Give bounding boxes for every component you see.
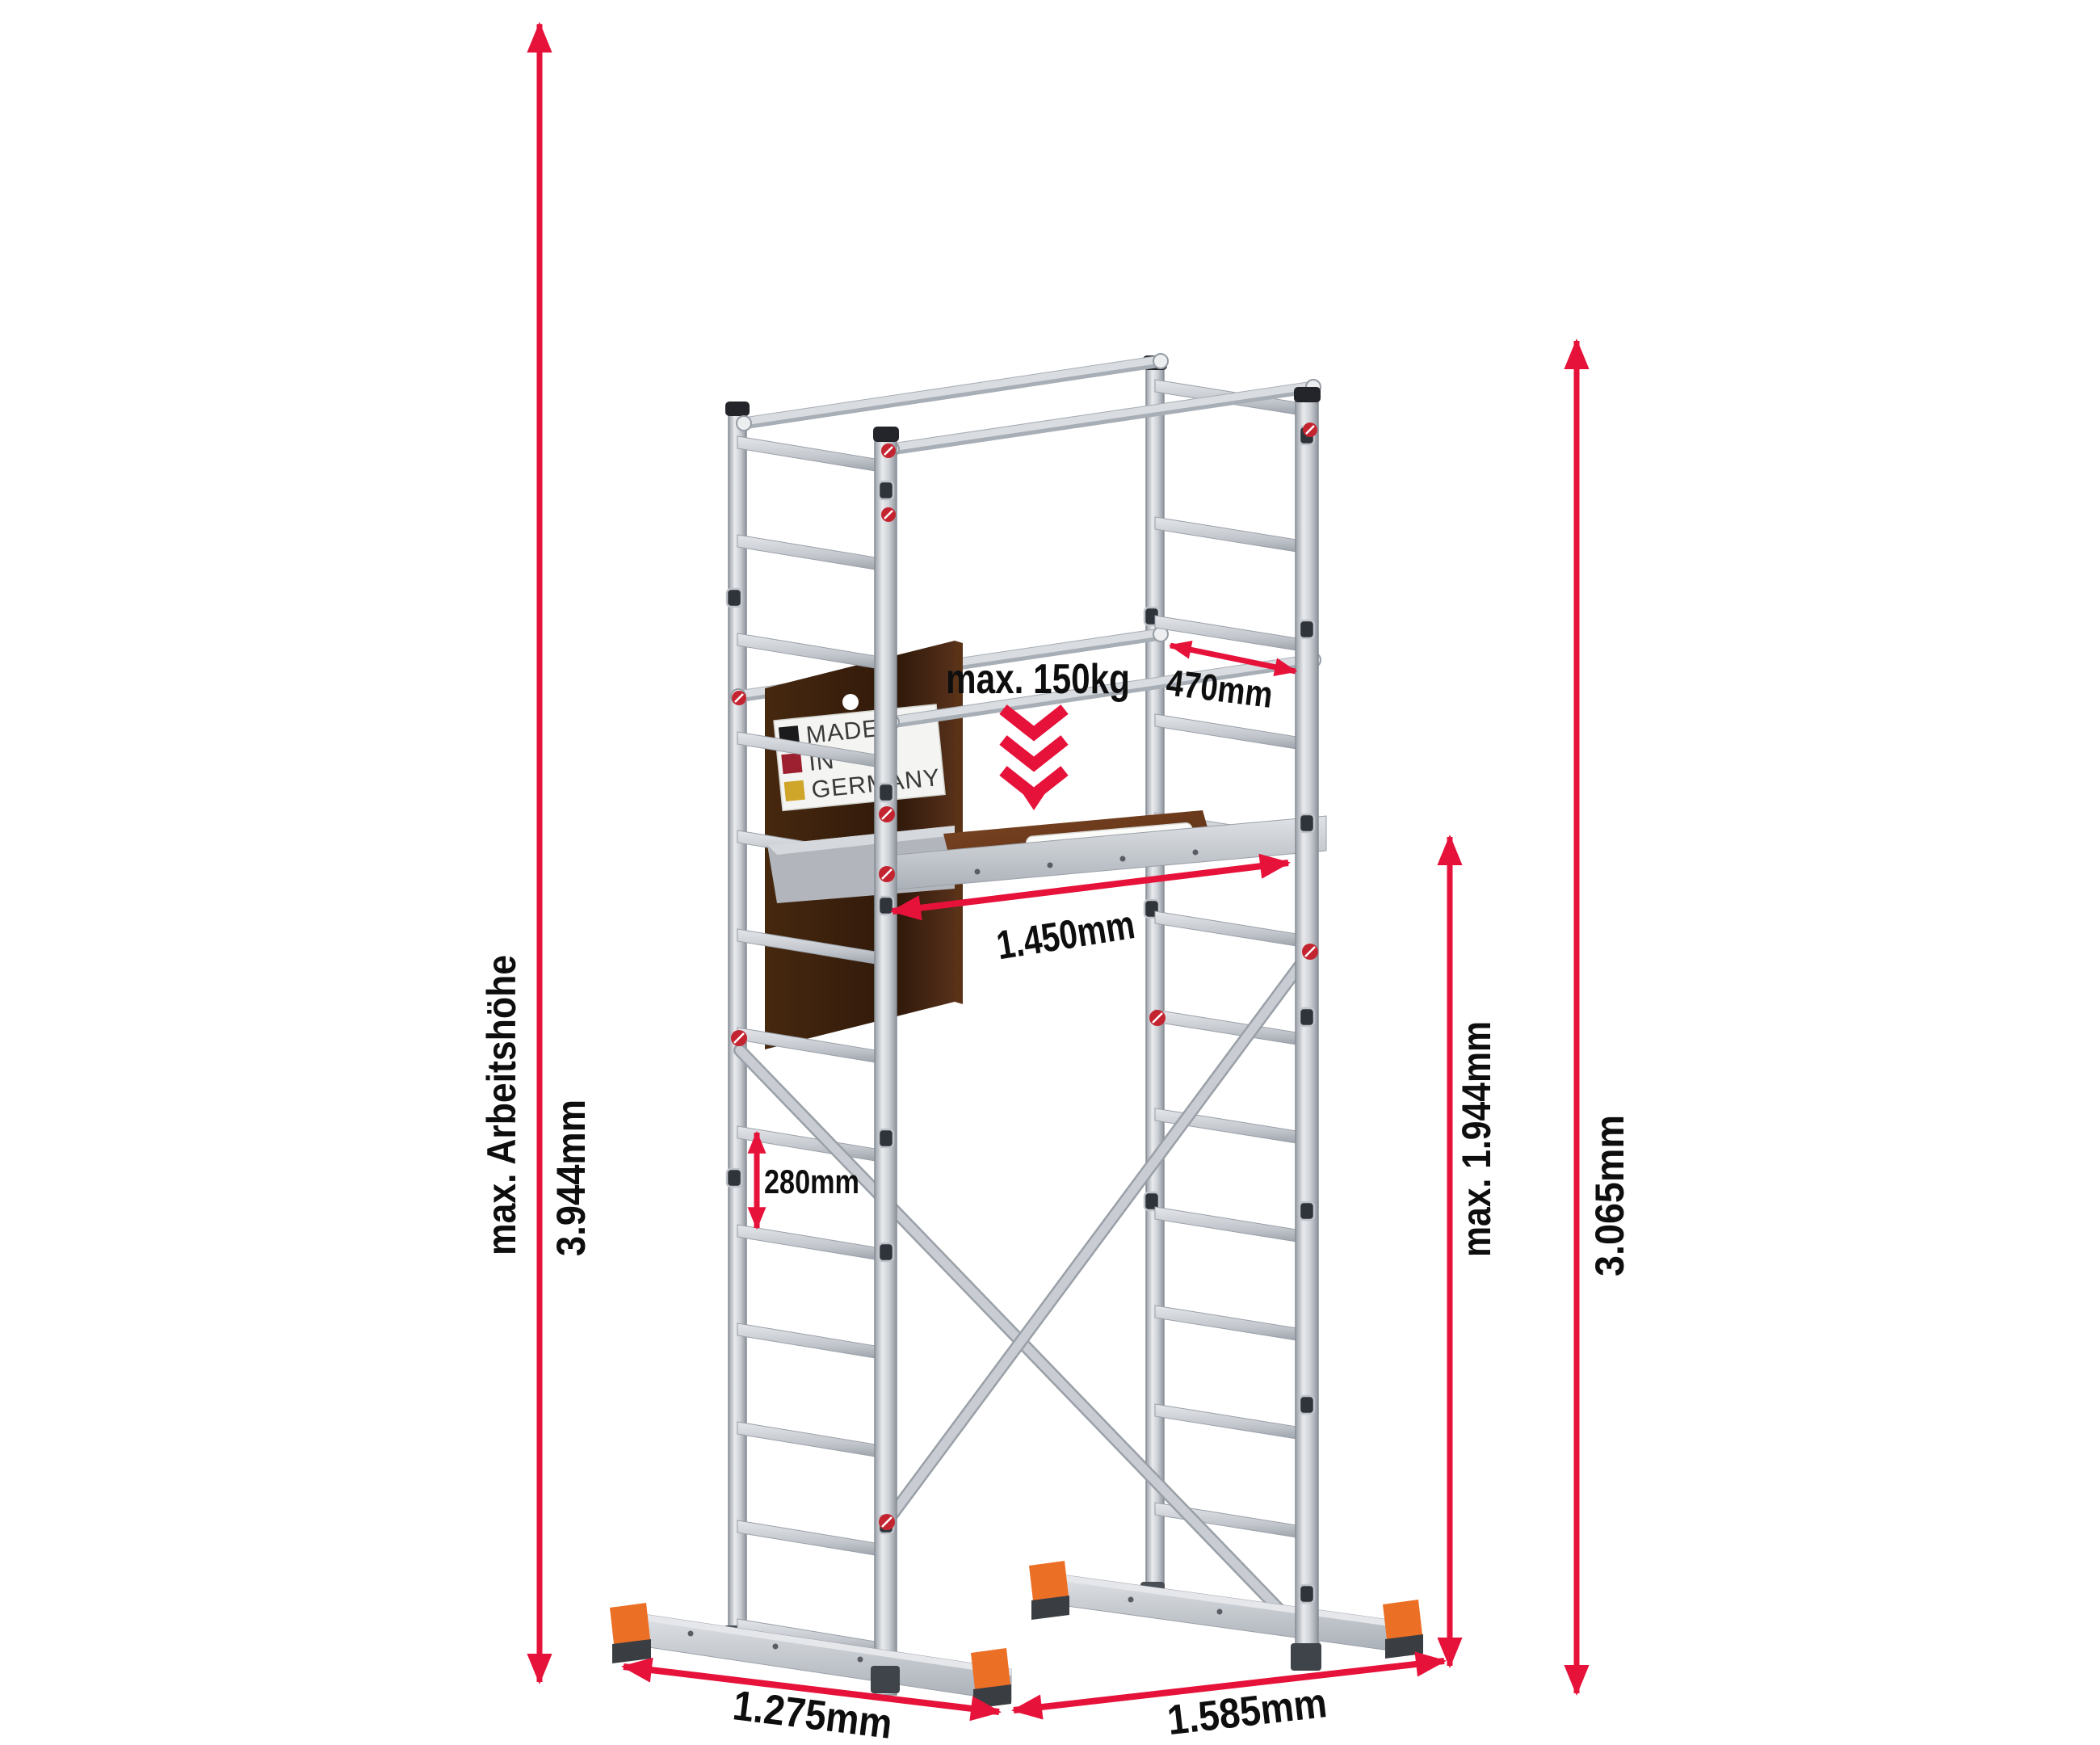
front-left-post bbox=[875, 434, 897, 1695]
post-socket bbox=[1300, 620, 1314, 638]
right-frame-rungs bbox=[1155, 380, 1307, 1539]
clamp-icon bbox=[879, 1514, 895, 1530]
rung bbox=[1155, 1010, 1307, 1046]
rivet bbox=[1128, 1597, 1134, 1603]
rivet bbox=[1217, 1609, 1223, 1615]
front-left-post-cap bbox=[873, 427, 899, 442]
chevron-tip bbox=[1021, 791, 1047, 810]
clamp-icon bbox=[881, 444, 896, 458]
rivet bbox=[858, 1657, 863, 1663]
rivet bbox=[1193, 850, 1199, 856]
post-socket bbox=[879, 481, 893, 499]
clamp-icon bbox=[1149, 1010, 1165, 1026]
rail-end-cap bbox=[1153, 354, 1168, 368]
post-socket bbox=[727, 1169, 741, 1187]
left-frame-rungs bbox=[737, 436, 885, 1655]
diagram-canvas: MADE IN GERMANY bbox=[0, 0, 2100, 1745]
front-left-foot bbox=[871, 1666, 900, 1693]
rivet bbox=[688, 1631, 694, 1637]
chevron bbox=[1003, 709, 1065, 734]
flag-gold-square bbox=[784, 780, 805, 801]
clamp-icon bbox=[731, 1030, 747, 1046]
rung bbox=[1155, 1404, 1307, 1440]
front-right-post-cap bbox=[1294, 387, 1321, 402]
post-socket bbox=[879, 784, 893, 801]
post-socket bbox=[879, 897, 893, 915]
post-socket bbox=[727, 589, 741, 607]
scaffold-height-value: 3.065mm bbox=[1587, 1115, 1632, 1276]
scaffold-structure: MADE IN GERMANY bbox=[610, 354, 1423, 1709]
post-socket bbox=[1300, 1585, 1314, 1603]
front-posts bbox=[873, 387, 1321, 1695]
post-socket bbox=[879, 1129, 893, 1147]
post-socket bbox=[879, 1243, 893, 1261]
rung bbox=[737, 1323, 885, 1360]
rung bbox=[1155, 714, 1307, 751]
rung bbox=[1155, 1207, 1307, 1243]
front-right-foot bbox=[1291, 1643, 1321, 1671]
post-socket bbox=[1300, 1202, 1314, 1220]
sign-board-hole bbox=[842, 694, 859, 710]
working-height-value: 3.944mm bbox=[548, 1100, 594, 1256]
clamp-icon bbox=[732, 691, 746, 705]
rail-end-cap bbox=[737, 416, 751, 431]
post-socket bbox=[1300, 814, 1314, 832]
platform-length-value: 1.450mm bbox=[993, 902, 1138, 968]
right-stabilizer bbox=[1029, 1561, 1423, 1659]
rear-left-post-cap bbox=[725, 402, 750, 416]
rung bbox=[737, 436, 885, 473]
clamp-icon bbox=[879, 806, 895, 822]
rung bbox=[737, 1422, 885, 1458]
rung bbox=[737, 633, 885, 670]
platform-height-value: max. 1.944mm bbox=[1454, 1021, 1499, 1257]
clamp-icon bbox=[1302, 944, 1318, 960]
max-load-label: max. 150kg bbox=[946, 656, 1130, 703]
rivet bbox=[1120, 856, 1126, 862]
clamp-icon bbox=[881, 507, 896, 522]
rung bbox=[737, 1225, 885, 1261]
chevron bbox=[1003, 740, 1065, 764]
post-socket bbox=[1300, 1008, 1314, 1026]
rivet bbox=[773, 1644, 779, 1650]
rung bbox=[737, 535, 885, 571]
clamp-icon bbox=[879, 866, 895, 882]
rung bbox=[1155, 911, 1307, 948]
flag-red-square bbox=[781, 753, 802, 774]
rung bbox=[1155, 1306, 1307, 1342]
rear-right-post bbox=[1146, 362, 1164, 1609]
base-width-front-value: 1.275mm bbox=[730, 1682, 895, 1745]
rivet bbox=[1048, 863, 1053, 868]
scaffold-dimension-diagram: MADE IN GERMANY bbox=[0, 0, 2100, 1745]
dimension-annotations: max. Arbeitshöhe 3.944mm 3.065mm max. 1.… bbox=[479, 24, 1632, 1745]
load-down-chevrons-icon bbox=[1003, 709, 1065, 810]
front-right-post bbox=[1296, 394, 1318, 1666]
brace-up bbox=[887, 952, 1310, 1522]
rung bbox=[737, 1520, 885, 1557]
clamp-icon bbox=[1303, 423, 1317, 437]
rung-spacing-value: 280mm bbox=[764, 1163, 859, 1200]
rear-top-rail-highlight bbox=[744, 360, 1161, 422]
rung bbox=[1155, 517, 1307, 553]
rivet bbox=[975, 869, 981, 875]
post-socket bbox=[1300, 1396, 1314, 1414]
working-height-label: max. Arbeitshöhe bbox=[479, 955, 524, 1255]
